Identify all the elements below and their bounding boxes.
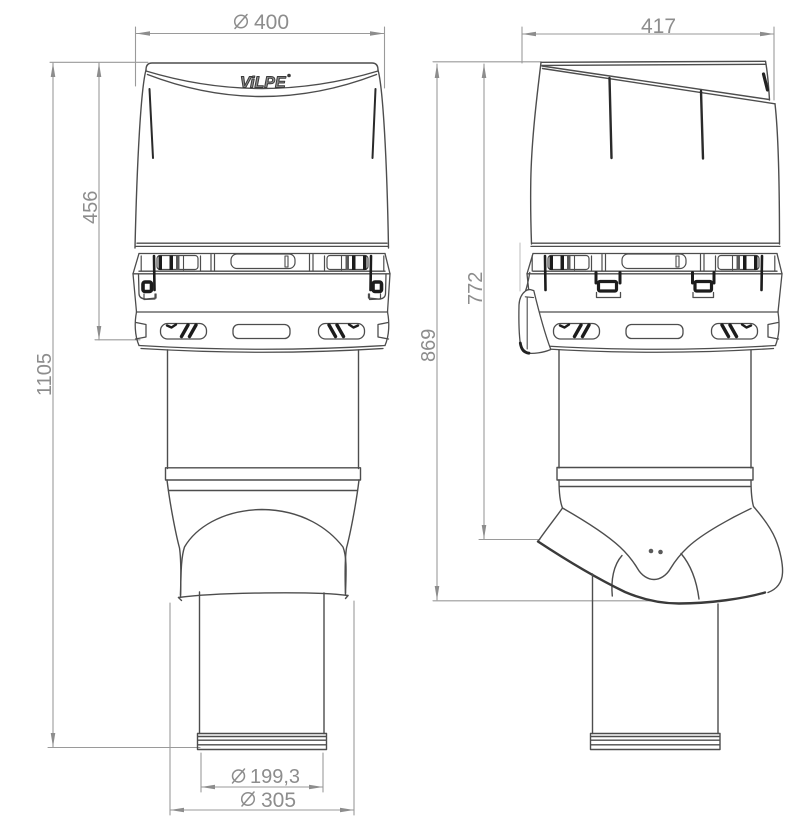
svg-text:456: 456 <box>80 191 102 224</box>
svg-text:199,3: 199,3 <box>250 766 300 788</box>
svg-text:1105: 1105 <box>34 353 56 396</box>
svg-text:869: 869 <box>418 329 440 362</box>
svg-text:ViLPE: ViLPE <box>240 75 287 92</box>
svg-text:772: 772 <box>465 272 487 305</box>
svg-text:305: 305 <box>261 789 296 812</box>
svg-text:417: 417 <box>641 15 676 38</box>
svg-text:400: 400 <box>254 11 289 34</box>
